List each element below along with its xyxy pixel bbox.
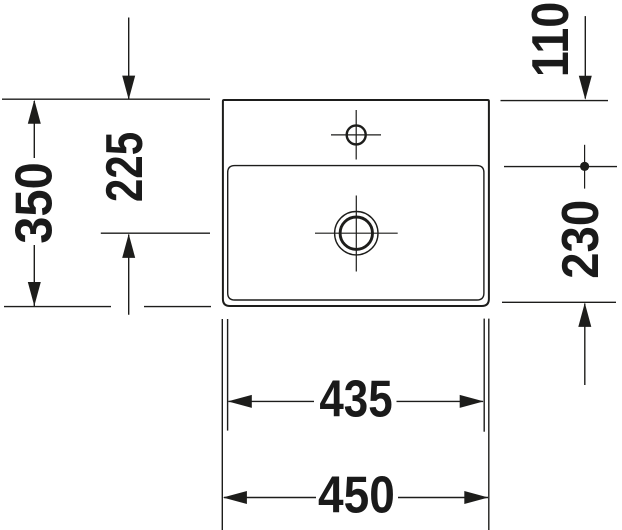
svg-text:110: 110 — [522, 2, 580, 77]
svg-text:225: 225 — [96, 132, 154, 202]
svg-text:230: 230 — [551, 200, 610, 279]
svg-text:350: 350 — [4, 162, 63, 244]
svg-text:450: 450 — [318, 467, 395, 524]
svg-text:435: 435 — [319, 370, 392, 428]
